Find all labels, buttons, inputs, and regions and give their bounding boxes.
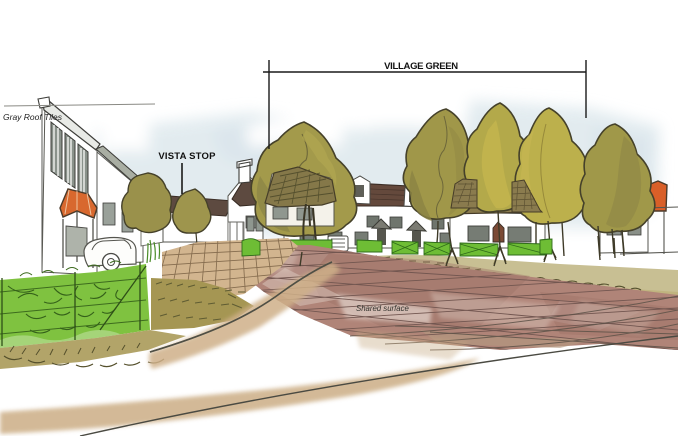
svg-text:Shared surface: Shared surface (356, 304, 410, 313)
svg-text:VILLAGE GREEN: VILLAGE GREEN (384, 61, 458, 72)
svg-text:Gray Roof Tiles: Gray Roof Tiles (3, 112, 63, 122)
svg-text:VISTA STOP: VISTA STOP (158, 151, 216, 162)
